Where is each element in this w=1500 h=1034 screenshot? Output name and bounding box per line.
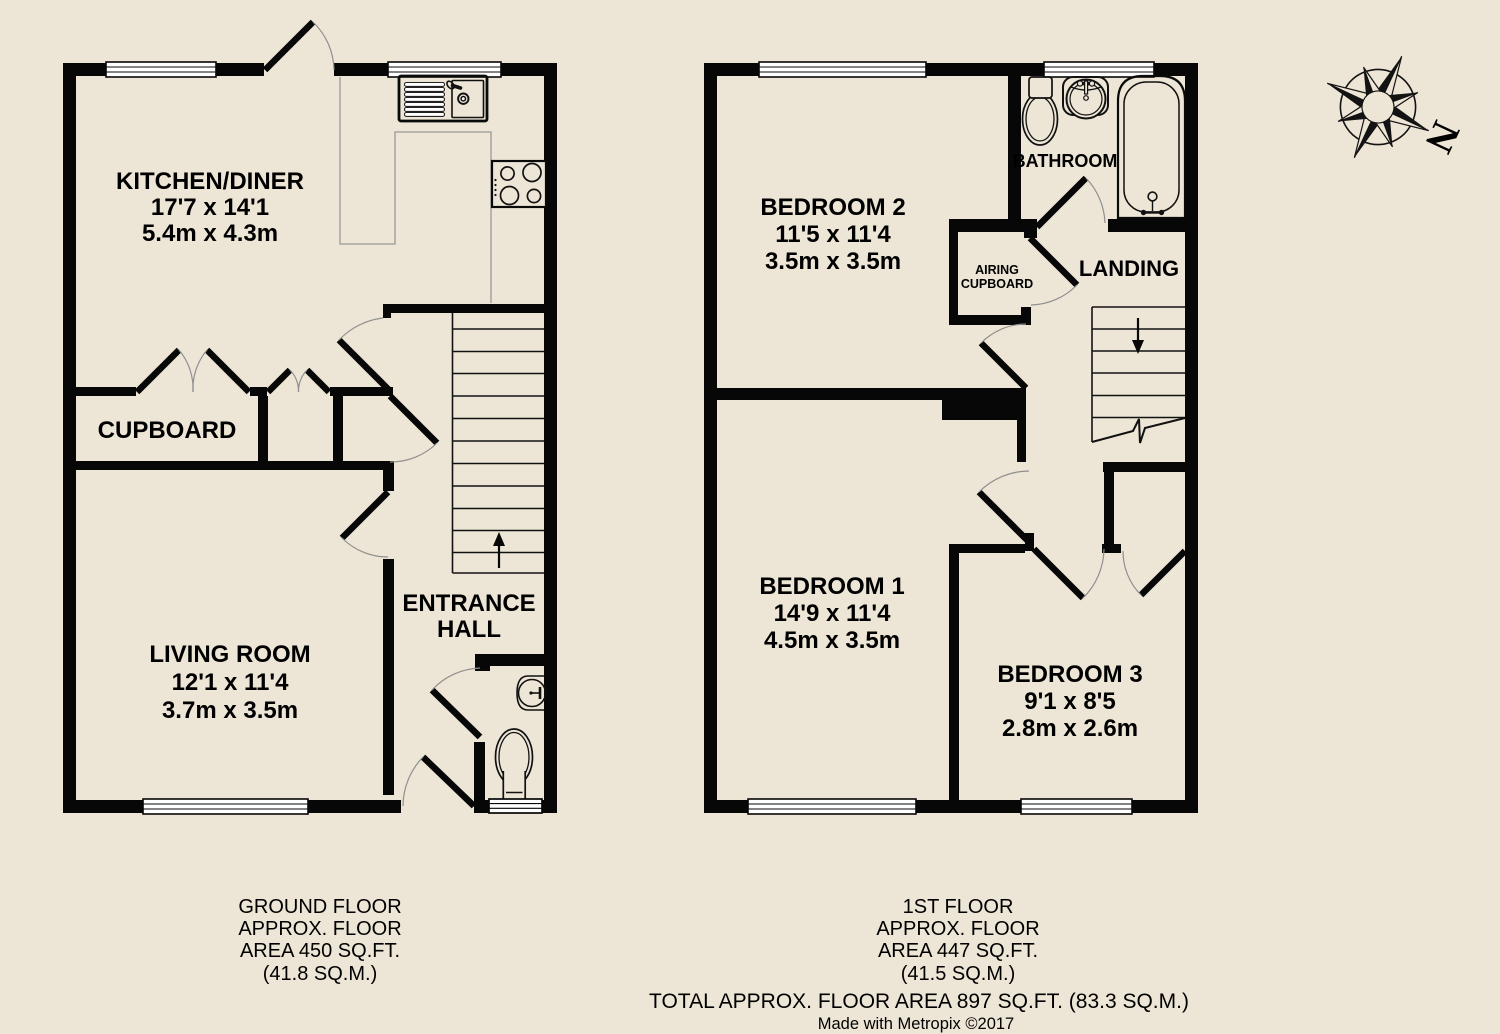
svg-text:3.5m x 3.5m: 3.5m x 3.5m <box>765 248 901 275</box>
svg-text:14'9 x 11'4: 14'9 x 11'4 <box>774 600 892 627</box>
svg-text:KITCHEN/DINER: KITCHEN/DINER <box>116 168 304 195</box>
svg-text:BATHROOM: BATHROOM <box>1013 151 1118 171</box>
svg-text:LIVING ROOM: LIVING ROOM <box>149 641 310 668</box>
svg-text:HALL: HALL <box>437 616 501 643</box>
svg-text:CUPBOARD: CUPBOARD <box>961 277 1033 291</box>
svg-text:(41.8 SQ.M.): (41.8 SQ.M.) <box>263 963 377 985</box>
svg-text:ENTRANCE: ENTRANCE <box>402 590 535 617</box>
svg-text:3.7m x 3.5m: 3.7m x 3.5m <box>162 697 298 724</box>
svg-text:5.4m x 4.3m: 5.4m x 4.3m <box>142 220 278 247</box>
svg-text:9'1 x 8'5: 9'1 x 8'5 <box>1024 688 1116 715</box>
svg-text:BEDROOM 2: BEDROOM 2 <box>760 194 905 221</box>
svg-text:AREA 450 SQ.FT.: AREA 450 SQ.FT. <box>240 940 400 962</box>
svg-text:APPROX. FLOOR: APPROX. FLOOR <box>876 918 1039 940</box>
svg-text:11'5 x 11'4: 11'5 x 11'4 <box>775 221 891 248</box>
svg-text:2.8m x 2.6m: 2.8m x 2.6m <box>1002 715 1138 742</box>
svg-text:17'7 x 14'1: 17'7 x 14'1 <box>151 194 269 221</box>
svg-text:4.5m x 3.5m: 4.5m x 3.5m <box>764 627 900 654</box>
svg-text:1ST FLOOR: 1ST FLOOR <box>903 896 1014 918</box>
svg-text:APPROX. FLOOR: APPROX. FLOOR <box>238 918 401 940</box>
svg-text:GROUND FLOOR: GROUND FLOOR <box>238 896 401 918</box>
svg-text:CUPBOARD: CUPBOARD <box>98 417 237 444</box>
svg-text:12'1 x 11'4: 12'1 x 11'4 <box>172 669 290 696</box>
svg-text:TOTAL APPROX. FLOOR AREA 897 S: TOTAL APPROX. FLOOR AREA 897 SQ.FT. (83.… <box>649 990 1189 1013</box>
svg-text:AREA 447 SQ.FT.: AREA 447 SQ.FT. <box>878 940 1038 962</box>
svg-text:BEDROOM 3: BEDROOM 3 <box>997 661 1142 688</box>
svg-text:BEDROOM 1: BEDROOM 1 <box>759 573 904 600</box>
svg-text:AIRING: AIRING <box>975 263 1019 277</box>
svg-text:Made with Metropix ©2017: Made with Metropix ©2017 <box>818 1015 1015 1033</box>
svg-text:LANDING: LANDING <box>1079 256 1179 281</box>
svg-text:(41.5 SQ.M.): (41.5 SQ.M.) <box>901 963 1015 985</box>
